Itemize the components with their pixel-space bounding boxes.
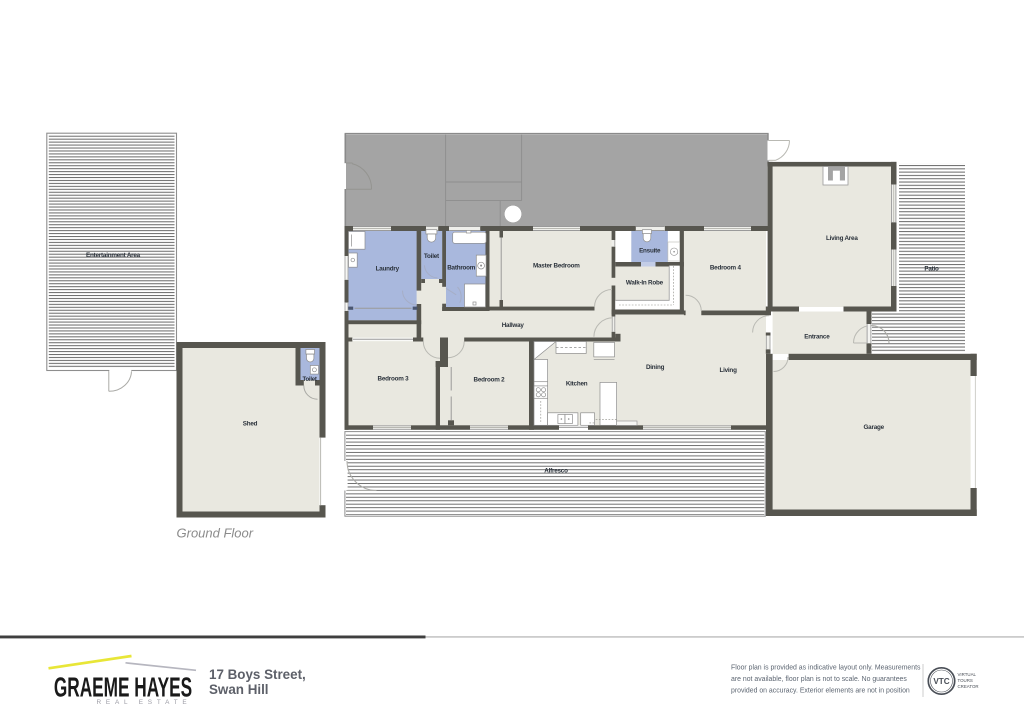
svg-text:Patio: Patio bbox=[924, 266, 939, 273]
svg-text:REAL ESTATE: REAL ESTATE bbox=[97, 699, 192, 706]
svg-text:Ensuite: Ensuite bbox=[639, 248, 661, 255]
svg-text:Walk-In Robe: Walk-In Robe bbox=[626, 280, 664, 287]
svg-text:Shed: Shed bbox=[243, 421, 258, 428]
svg-text:Ground Floor: Ground Floor bbox=[177, 526, 254, 541]
svg-text:Entertainment Area: Entertainment Area bbox=[86, 252, 141, 259]
svg-text:Master Bedroom: Master Bedroom bbox=[533, 262, 580, 269]
svg-text:Living: Living bbox=[719, 367, 737, 374]
svg-text:Living Area: Living Area bbox=[826, 235, 858, 242]
svg-text:Hallway: Hallway bbox=[502, 322, 525, 329]
svg-text:Toilet: Toilet bbox=[302, 377, 316, 383]
svg-text:Dining: Dining bbox=[646, 364, 665, 371]
svg-text:are not available, floor plan: are not available, floor plan is not to … bbox=[731, 676, 907, 683]
svg-text:Garage: Garage bbox=[864, 424, 885, 431]
svg-text:Kitchen: Kitchen bbox=[566, 380, 588, 387]
svg-text:Swan Hill: Swan Hill bbox=[209, 682, 269, 697]
svg-text:Bedroom 2: Bedroom 2 bbox=[474, 376, 506, 383]
svg-text:Bedroom 3: Bedroom 3 bbox=[378, 376, 410, 383]
svg-text:Bedroom 4: Bedroom 4 bbox=[710, 264, 742, 271]
svg-text:Floor plan is provided as indi: Floor plan is provided as indicative lay… bbox=[731, 665, 921, 672]
svg-text:TOURS: TOURS bbox=[958, 678, 973, 683]
svg-text:Alfresco: Alfresco bbox=[544, 468, 568, 475]
svg-text:CREATOR: CREATOR bbox=[958, 684, 979, 689]
svg-text:Entrance: Entrance bbox=[804, 334, 830, 341]
svg-text:Bathroom: Bathroom bbox=[447, 265, 476, 272]
svg-text:provided on accuracy. Exterior: provided on accuracy. Exterior elements … bbox=[731, 688, 910, 695]
svg-text:GRAEME HAYES: GRAEME HAYES bbox=[54, 671, 192, 702]
svg-text:Laundry: Laundry bbox=[376, 265, 400, 272]
svg-text:VTC: VTC bbox=[933, 677, 949, 686]
svg-text:17 Boys Street,: 17 Boys Street, bbox=[209, 667, 306, 682]
svg-text:Toilet: Toilet bbox=[424, 253, 440, 260]
svg-text:VIRTUAL: VIRTUAL bbox=[958, 672, 977, 677]
